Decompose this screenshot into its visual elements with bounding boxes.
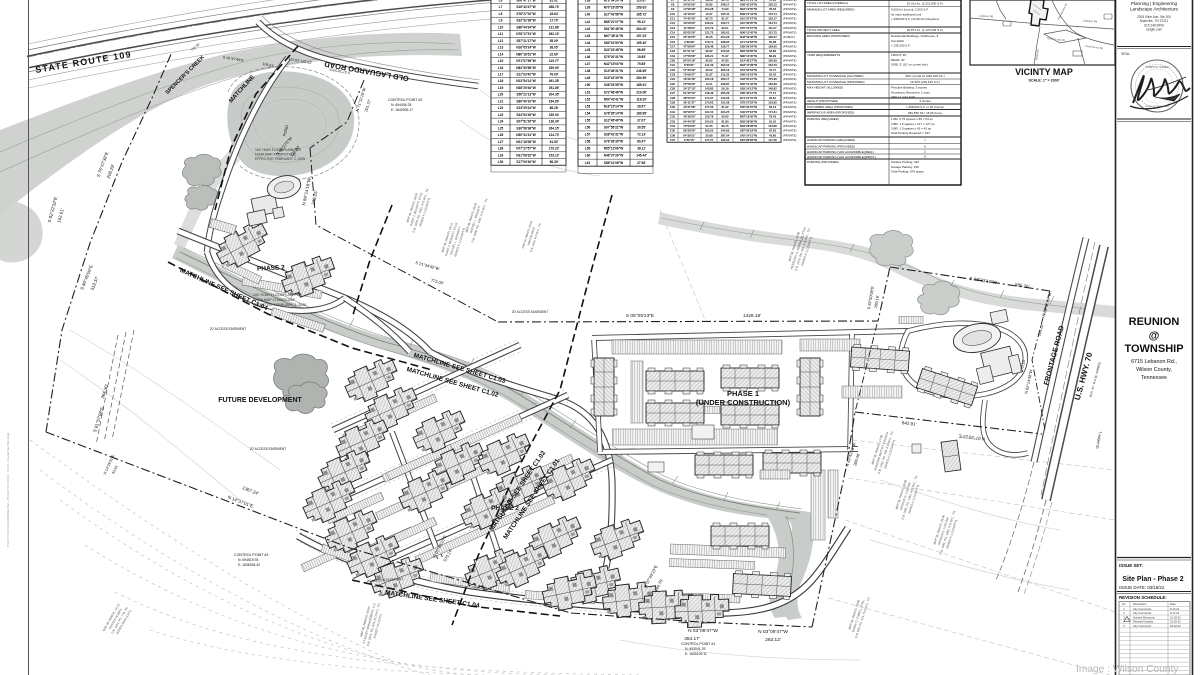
svg-text:28.57': 28.57' <box>637 104 646 108</box>
svg-text:L56: L56 <box>585 126 591 130</box>
svg-text:(PRIVATE): (PRIVATE) <box>783 54 796 58</box>
svg-text:79.43: 79.43 <box>769 115 776 119</box>
svg-text:129.60: 129.60 <box>768 45 777 49</box>
svg-text:3 BR: 1.0 spaces x 42 = 42 sp: 3 BR: 1.0 spaces x 42 = 42 sp <box>891 126 931 130</box>
svg-text:TOWNSHIP: TOWNSHIP <box>1124 343 1183 355</box>
svg-text:81.80: 81.80 <box>722 119 729 123</box>
svg-text:N38°29'40″W: N38°29'40″W <box>516 86 536 90</box>
svg-text:L17: L17 <box>498 72 504 76</box>
svg-text:210.06': 210.06' <box>636 90 647 94</box>
svg-text:REAR: 20': REAR: 20' <box>891 58 905 62</box>
svg-text:47°56'04″: 47°56'04″ <box>683 45 696 49</box>
svg-text:111.07: 111.07 <box>768 26 777 30</box>
svg-text:(PRIVATE): (PRIVATE) <box>783 87 796 91</box>
svg-text:Surface Parking: 340: Surface Parking: 340 <box>891 160 919 164</box>
svg-text:36°11'37″: 36°11'37″ <box>683 101 696 105</box>
svg-text:C15: C15 <box>670 35 676 39</box>
svg-text:S06°47'17″W: S06°47'17″W <box>516 0 535 2</box>
svg-text:L59: L59 <box>585 147 591 151</box>
svg-text:MAX HEIGHT (ALLOWED): MAX HEIGHT (ALLOWED) <box>807 86 843 90</box>
svg-text:20' ACCESS EASEMENT: 20' ACCESS EASEMENT <box>210 327 246 331</box>
svg-text:S36°33'55″W: S36°33'55″W <box>604 83 623 87</box>
svg-text:S76°36'30″W: S76°36'30″W <box>604 140 623 144</box>
svg-text:csdgtn.com: csdgtn.com <box>1146 28 1163 32</box>
svg-text:174.37: 174.37 <box>705 96 714 100</box>
svg-text:264.15': 264.15' <box>549 126 560 130</box>
svg-text:CONTROL POINT #2: CONTROL POINT #2 <box>388 98 422 102</box>
svg-text:N16°05'24″W: N16°05'24″W <box>516 46 536 50</box>
svg-text:C34: C34 <box>670 124 676 128</box>
svg-text:32.25: 32.25 <box>706 35 713 39</box>
svg-text:68°30'50″: 68°30'50″ <box>683 129 696 133</box>
svg-text:163.20: 163.20 <box>705 129 714 133</box>
svg-text:N87°06'56″W: N87°06'56″W <box>740 49 757 53</box>
svg-text:43.85: 43.85 <box>769 133 776 137</box>
svg-text:N48°27'26″W: N48°27'26″W <box>604 154 624 158</box>
svg-text:(PRIVATE): (PRIVATE) <box>783 17 796 21</box>
svg-text:S32°32'38″W: S32°32'38″W <box>516 19 535 23</box>
svg-text:180.65': 180.65' <box>636 111 647 115</box>
svg-text:(PRIVATE): (PRIVATE) <box>783 138 796 142</box>
svg-text:L53: L53 <box>585 104 591 108</box>
svg-text:102.17: 102.17 <box>768 17 777 21</box>
svg-text:BUILDING AREA (PROPOSED): BUILDING AREA (PROPOSED) <box>807 34 850 38</box>
svg-text:76.09': 76.09' <box>550 72 559 76</box>
svg-text:56.85': 56.85' <box>637 48 646 52</box>
svg-text:N64°13'55″W: N64°13'55″W <box>740 7 757 11</box>
svg-text:N54°42'41″W: N54°42'41″W <box>604 97 624 101</box>
svg-text:N: 694519.93: N: 694519.93 <box>238 558 258 562</box>
svg-text:Date: Date <box>1170 602 1176 606</box>
svg-text:N85°21'07″W: N85°21'07″W <box>604 20 624 24</box>
svg-text:154.73: 154.73 <box>768 21 777 25</box>
svg-text:119.77': 119.77' <box>549 59 560 63</box>
svg-text:(PRIVATE): (PRIVATE) <box>783 91 796 95</box>
svg-text:235.04': 235.04' <box>549 113 560 117</box>
svg-text:N23°47'28″W: N23°47'28″W <box>740 63 757 67</box>
svg-text:L7: L7 <box>499 5 503 9</box>
svg-text:S44°53'49″W: S44°53'49″W <box>516 113 535 117</box>
svg-text:11°38'04″: 11°38'04″ <box>683 26 696 30</box>
svg-text:175.96: 175.96 <box>768 77 777 81</box>
svg-text:228.87: 228.87 <box>721 82 730 86</box>
svg-text:Landscape Architecture: Landscape Architecture <box>1130 7 1178 12</box>
svg-text:L47: L47 <box>585 62 591 66</box>
svg-text:C13: C13 <box>670 26 676 30</box>
svg-text:113.23: 113.23 <box>721 73 730 77</box>
svg-text:(PRIVATE): (PRIVATE) <box>783 101 796 105</box>
svg-text:City Comments: City Comments <box>1133 607 1152 611</box>
svg-text:C30: C30 <box>670 105 676 109</box>
svg-text:S86°44'34″W: S86°44'34″W <box>516 25 535 29</box>
svg-text:43°27'38″: 43°27'38″ <box>683 105 696 109</box>
svg-text:54°44'18″: 54°44'18″ <box>683 119 696 123</box>
svg-text:L23: L23 <box>498 113 504 117</box>
svg-text:148.82: 148.82 <box>768 87 777 91</box>
svg-text:S09°41'34″W: S09°41'34″W <box>740 3 757 7</box>
svg-text:S 05°05'23″E: S 05°05'23″E <box>626 313 654 319</box>
svg-text:1,308,800 S.F. or 30.0 Acres: 1,308,800 S.F. or 30.0 Acres <box>906 105 944 109</box>
svg-text:L48: L48 <box>585 69 591 73</box>
svg-text:(PRIVATE): (PRIVATE) <box>783 59 796 63</box>
svg-text:259.63': 259.63' <box>636 6 647 10</box>
svg-text:(PRIVATE): (PRIVATE) <box>783 63 796 67</box>
svg-text:C17: C17 <box>670 45 676 49</box>
svg-text:C23: C23 <box>670 73 676 77</box>
svg-text:JOSEPH M. HADDEN: JOSEPH M. HADDEN <box>1145 66 1169 69</box>
svg-text:S30°58'36″W: S30°58'36″W <box>516 126 535 130</box>
svg-text:17.70': 17.70' <box>550 19 559 23</box>
svg-text:C20: C20 <box>670 59 676 63</box>
svg-text:Wilson County,: Wilson County, <box>1136 367 1172 373</box>
svg-text:22.60': 22.60' <box>550 52 559 56</box>
svg-text:265.26: 265.26 <box>721 91 730 95</box>
svg-text:71.97: 71.97 <box>722 54 729 58</box>
svg-text:40% of total lot (469,238 S.F.: 40% of total lot (469,238 S.F.) <box>905 74 945 78</box>
svg-text:C12: C12 <box>670 21 676 25</box>
svg-text:61.22: 61.22 <box>722 105 729 109</box>
svg-text:N67°19'42″W: N67°19'42″W <box>740 115 757 119</box>
svg-text:CONTROL POINT #3: CONTROL POINT #3 <box>234 553 268 557</box>
svg-text:DISTURBED AREA (PROPOSED): DISTURBED AREA (PROPOSED) <box>807 105 853 109</box>
svg-text:N70°16'35″W: N70°16'35″W <box>604 6 624 10</box>
svg-text:120.67': 120.67' <box>636 0 647 3</box>
svg-text:131.66': 131.66' <box>549 25 560 29</box>
svg-text:S14°40'27″W: S14°40'27″W <box>740 59 757 63</box>
svg-text:(PRIVATE): (PRIVATE) <box>783 82 796 86</box>
svg-text:38°55'04″: 38°55'04″ <box>683 96 696 100</box>
svg-text:177.32: 177.32 <box>705 105 714 109</box>
svg-text:4°29'39″: 4°29'39″ <box>684 40 696 44</box>
svg-text:45°39'20″: 45°39'20″ <box>683 115 696 119</box>
svg-text:C25: C25 <box>670 82 676 86</box>
svg-text:S49°27'04″W: S49°27'04″W <box>740 110 757 114</box>
svg-text:93.51: 93.51 <box>722 26 729 30</box>
svg-text:38.11': 38.11' <box>637 147 646 151</box>
svg-text:264.00': 264.00' <box>636 27 647 31</box>
svg-text:C11: C11 <box>670 17 675 21</box>
svg-text:L60: L60 <box>585 154 591 158</box>
svg-text:E: 1839109.11: E: 1839109.11 <box>685 652 707 656</box>
svg-text:Owners Revisions: Owners Revisions <box>1133 615 1155 619</box>
svg-text:15.65': 15.65' <box>637 55 646 59</box>
svg-text:177.27: 177.27 <box>705 138 714 142</box>
svg-text:YARD REQUIREMENTS: YARD REQUIREMENTS <box>807 53 840 57</box>
svg-text:74°42'45″: 74°42'45″ <box>683 17 696 21</box>
svg-text:S16°43'47″W: S16°43'47″W <box>516 5 535 9</box>
svg-text:S06°42'12″W: S06°42'12″W <box>740 91 757 95</box>
svg-text:N 03°09'47″W: N 03°09'47″W <box>688 628 718 634</box>
svg-text:C29: C29 <box>670 101 676 105</box>
svg-text:81.27: 81.27 <box>722 17 729 21</box>
svg-text:C31: C31 <box>670 110 676 114</box>
svg-text:N79°04'24″W: N79°04'24″W <box>604 0 624 3</box>
svg-text:(PRIVATE): (PRIVATE) <box>783 119 796 123</box>
svg-text:109.31: 109.31 <box>705 21 714 25</box>
svg-text:S23°29'24″W: S23°29'24″W <box>516 106 535 110</box>
svg-text:S42°14'51″W: S42°14'51″W <box>740 133 757 137</box>
svg-text:(PRIVATE): (PRIVATE) <box>783 129 796 133</box>
svg-text:129.77: 129.77 <box>721 45 730 49</box>
svg-text:S71°13'32″W: S71°13'32″W <box>740 40 757 44</box>
svg-text:131.75: 131.75 <box>768 31 777 35</box>
svg-text:L41: L41 <box>585 20 591 24</box>
svg-text:287.04: 287.04 <box>721 133 730 137</box>
svg-text:(PRIVATE): (PRIVATE) <box>783 7 796 11</box>
svg-text:S22°23'48″W: S22°23'48″W <box>604 48 623 52</box>
svg-text:C16: C16 <box>670 40 676 44</box>
svg-text:164.90': 164.90' <box>549 99 560 103</box>
svg-text:34°17'10″: 34°17'10″ <box>683 87 696 91</box>
svg-text:HANDICAP PARKING (VAN ACCESSIB: HANDICAP PARKING (VAN ACCESSIBLE)(REQ.) <box>807 150 874 154</box>
svg-text:165.72': 165.72' <box>636 13 647 17</box>
svg-text:103.79: 103.79 <box>768 63 777 67</box>
svg-text:S61°26'56″W: S61°26'56″W <box>740 138 757 142</box>
svg-text:22.82: 22.82 <box>706 3 713 7</box>
svg-text:S72°02'53″W: S72°02'53″W <box>740 68 757 72</box>
svg-text:(PRIVATE): (PRIVATE) <box>783 73 796 77</box>
svg-text:+ 638,500 S.F. (14.66 AC) Requ: + 638,500 S.F. (14.66 AC) Required <box>891 17 939 21</box>
svg-text:E: 1840905.17: E: 1840905.17 <box>391 108 413 112</box>
svg-text:30.55': 30.55' <box>637 126 646 130</box>
svg-text:L24: L24 <box>498 120 504 124</box>
svg-text:18.64': 18.64' <box>550 12 559 16</box>
svg-text:S17°09'40″W: S17°09'40″W <box>516 160 535 164</box>
svg-text:S11°02'42″W: S11°02'42″W <box>516 72 535 76</box>
svg-text:(UNDER CONSTRUCTION): (UNDER CONSTRUCTION) <box>696 398 791 407</box>
svg-text:29.02: 29.02 <box>706 68 713 72</box>
svg-text:141.09: 141.09 <box>705 63 714 67</box>
svg-text:135.41: 135.41 <box>721 12 730 16</box>
svg-text:L28: L28 <box>498 147 504 151</box>
svg-text:77.74: 77.74 <box>769 91 776 95</box>
svg-text:Garage Parking: 336: Garage Parking: 336 <box>891 165 919 169</box>
svg-text:L61: L61 <box>585 161 591 165</box>
svg-text:285.16: 285.16 <box>721 68 730 72</box>
svg-text:S38°42'31″W: S38°42'31″W <box>604 133 623 137</box>
svg-text:99.92: 99.92 <box>706 49 713 53</box>
svg-text:N42°15'03″W: N42°15'03″W <box>604 62 624 66</box>
svg-text:32.83: 32.83 <box>769 49 776 53</box>
svg-text:63.65: 63.65 <box>722 115 729 119</box>
svg-text:SEAL: SEAL <box>1121 52 1130 56</box>
svg-text:81.52': 81.52' <box>550 140 559 144</box>
svg-text:69°59'51″: 69°59'51″ <box>683 110 696 114</box>
svg-text:TOTAL PROJECT AREA: TOTAL PROJECT AREA <box>807 28 840 32</box>
svg-text:19.32% (226,615 S.F.): 19.32% (226,615 S.F.) <box>910 80 940 84</box>
svg-text:92.73: 92.73 <box>706 17 713 21</box>
svg-text:38.05': 38.05' <box>550 46 559 50</box>
svg-text:L40: L40 <box>585 13 591 17</box>
svg-text:143.85: 143.85 <box>705 87 714 91</box>
svg-text:S79°20'31″W: S79°20'31″W <box>604 55 623 59</box>
svg-text:195.30': 195.30' <box>636 41 647 45</box>
svg-text:01-25-22: 01-25-22 <box>1170 620 1181 624</box>
svg-text:Principle Building: 3 stories: Principle Building: 3 stories <box>891 86 928 90</box>
svg-text:N: 693041.29: N: 693041.29 <box>685 647 705 651</box>
svg-text:68.29: 68.29 <box>769 54 776 58</box>
svg-text:C19: C19 <box>670 54 676 58</box>
svg-text:88.28': 88.28' <box>550 106 559 110</box>
svg-text:14.21: 14.21 <box>706 82 713 86</box>
svg-text:(PRIVATE): (PRIVATE) <box>783 77 796 81</box>
svg-text:172.74: 172.74 <box>768 12 777 16</box>
svg-text:(PRIVATE): (PRIVATE) <box>783 21 796 25</box>
svg-text:97.63: 97.63 <box>769 129 776 133</box>
svg-text:25.88: 25.88 <box>706 133 713 137</box>
svg-text:100 YEAR FLOODPLAIN PER: 100 YEAR FLOODPLAIN PER <box>253 293 302 297</box>
svg-text:(PRIVATE): (PRIVATE) <box>783 133 796 137</box>
svg-text:L54: L54 <box>585 111 591 115</box>
svg-text:L25: L25 <box>498 126 504 130</box>
svg-text:150.99: 150.99 <box>768 59 777 63</box>
svg-text:165.77: 165.77 <box>721 21 730 25</box>
svg-text:L9: L9 <box>499 19 503 23</box>
svg-text:105.36: 105.36 <box>721 96 730 100</box>
svg-text:182.61: 182.61 <box>721 31 730 35</box>
svg-text:S86°41'06″W: S86°41'06″W <box>604 161 623 165</box>
svg-text:259.90': 259.90' <box>549 66 560 70</box>
svg-text:N55°51'42″W: N55°51'42″W <box>740 82 757 86</box>
svg-text:N18°15'14″W: N18°15'14″W <box>604 104 624 108</box>
svg-text:224.25: 224.25 <box>721 110 730 114</box>
svg-text:153.12': 153.12' <box>549 153 560 157</box>
svg-text:52.42: 52.42 <box>769 73 776 77</box>
svg-text:124.79: 124.79 <box>705 26 714 30</box>
svg-text:82°05'26″: 82°05'26″ <box>683 31 696 35</box>
svg-text:HANDICAP PARKING (PROVIDED): HANDICAP PARKING (PROVIDED) <box>807 145 855 149</box>
svg-text:Lebanon Rd: Lebanon Rd <box>979 14 994 19</box>
svg-text:136.21: 136.21 <box>705 54 714 58</box>
svg-text:S19°42'30″W: S19°42'30″W <box>604 76 623 80</box>
svg-text:97.80: 97.80 <box>722 59 729 63</box>
svg-text:Site Plan - Phase 2: Site Plan - Phase 2 <box>1122 576 1183 583</box>
svg-text:L51: L51 <box>585 90 591 94</box>
svg-text:(PRIVATE): (PRIVATE) <box>783 12 796 16</box>
svg-text:L18: L18 <box>498 79 504 83</box>
svg-text:8°00'21″: 8°00'21″ <box>684 63 696 67</box>
svg-text:C36: C36 <box>670 133 676 137</box>
svg-text:72.13': 72.13' <box>637 133 646 137</box>
svg-text:IMPERVIOUS AREA (PROPOSED): IMPERVIOUS AREA (PROPOSED) <box>807 111 854 115</box>
svg-text:@: @ <box>1149 330 1160 342</box>
svg-text:N62°28'28″W: N62°28'28″W <box>740 124 757 128</box>
svg-text:L16: L16 <box>498 66 504 70</box>
svg-text:124.73': 124.73' <box>549 133 560 137</box>
svg-text:171.31: 171.31 <box>768 110 777 114</box>
svg-text:157.23': 157.23' <box>636 34 647 38</box>
svg-text:Car Wash: Car Wash <box>891 39 905 43</box>
svg-text:N: 694406.28: N: 694406.28 <box>391 103 411 107</box>
svg-text:N55°12'06″W: N55°12'06″W <box>604 147 624 151</box>
svg-text:1 BR: 0.75 spaces x 85 = 64 sp: 1 BR: 0.75 spaces x 85 = 64 sp <box>891 117 933 121</box>
svg-text:L8: L8 <box>499 12 503 16</box>
svg-text:N30°41'31″W: N30°41'31″W <box>516 133 536 137</box>
svg-text:L10: L10 <box>498 25 504 29</box>
svg-text:210.32: 210.32 <box>721 49 730 53</box>
svg-text:262.10': 262.10' <box>549 32 560 36</box>
svg-text:C10: C10 <box>670 12 676 16</box>
svg-text:L12: L12 <box>498 39 504 43</box>
svg-text:N39°27'44″W: N39°27'44″W <box>740 12 757 16</box>
svg-text:03-18-22: 03-18-22 <box>1170 624 1181 628</box>
svg-text:FRONT: 30': FRONT: 30' <box>891 53 907 57</box>
svg-text:MAXIMUM LOT COVERAGE (ALLOWED): MAXIMUM LOT COVERAGE (ALLOWED) <box>807 74 863 78</box>
svg-text:C28: C28 <box>670 96 676 100</box>
svg-text:PHASE 2: PHASE 2 <box>257 264 286 272</box>
svg-text:16°22'49″: 16°22'49″ <box>683 77 696 81</box>
svg-text:No.: No. <box>1122 602 1126 606</box>
svg-text:REUNION: REUNION <box>1129 316 1180 328</box>
svg-text:(PRIVATE): (PRIVATE) <box>783 26 796 30</box>
svg-text:L55: L55 <box>585 118 591 122</box>
svg-text:C8: C8 <box>671 3 675 7</box>
svg-text:204.29: 204.29 <box>721 35 730 39</box>
svg-text:Residential Buildings, Clubhou: Residential Buildings, Clubhouse, & <box>891 34 939 38</box>
svg-text:L49: L49 <box>585 76 591 80</box>
svg-text:152.12: 152.12 <box>768 3 777 7</box>
svg-text:81°51'41″: 81°51'41″ <box>683 49 696 53</box>
svg-text:CONTROL POINT #1: CONTROL POINT #1 <box>681 642 715 646</box>
svg-text:61.16: 61.16 <box>769 119 776 123</box>
svg-text:REVISION SCHEDULE:: REVISION SCHEDULE: <box>1119 595 1167 600</box>
svg-text:N71°21'01″W: N71°21'01″W <box>740 96 757 100</box>
svg-text:L19: L19 <box>498 86 504 90</box>
svg-text:8-10-21: 8-10-21 <box>1170 607 1180 611</box>
svg-text:266.17: 266.17 <box>721 77 730 81</box>
svg-text:Revised Grading: Revised Grading <box>1133 620 1154 624</box>
svg-text:L29: L29 <box>498 153 504 157</box>
svg-text:N78°17'51″W: N78°17'51″W <box>516 32 536 36</box>
svg-text:S80°40'10″W: S80°40'10″W <box>516 99 535 103</box>
svg-text:L13: L13 <box>498 46 504 50</box>
svg-text:S10°37'47″W: S10°37'47″W <box>740 17 757 21</box>
svg-text:S10°32'05″W: S10°32'05″W <box>740 21 757 25</box>
svg-text:L43: L43 <box>585 34 591 38</box>
svg-text:N36°13'42″W: N36°13'42″W <box>740 31 757 35</box>
svg-text:S78°35'14″W: S78°35'14″W <box>604 111 623 115</box>
svg-text:VICINTY MAP: VICINTY MAP <box>1015 67 1073 77</box>
svg-text:City Comments: City Comments <box>1133 624 1152 628</box>
svg-text:881,559 SF / 15.65 Acres: 881,559 SF / 15.65 Acres <box>908 111 942 115</box>
svg-text:(PRIVATE): (PRIVATE) <box>783 124 796 128</box>
svg-text:145.44': 145.44' <box>636 154 647 158</box>
svg-text:(PRIVATE): (PRIVATE) <box>783 110 796 114</box>
svg-text:73°53'00″: 73°53'00″ <box>683 124 696 128</box>
svg-text:L58: L58 <box>585 140 591 144</box>
svg-text:L6: L6 <box>499 0 503 2</box>
svg-text:27.58': 27.58' <box>637 161 646 165</box>
svg-text:ISSUE DATE: 03/18/22: ISSUE DATE: 03/18/22 <box>1119 585 1165 590</box>
svg-text:3 stories: 3 stories <box>919 99 931 103</box>
svg-text:195.04: 195.04 <box>721 138 730 142</box>
svg-text:N80°13'45″W: N80°13'45″W <box>740 54 757 58</box>
svg-text:City Comments: City Comments <box>1133 611 1152 615</box>
svg-text:N80°16'51″W: N80°16'51″W <box>516 52 536 56</box>
svg-text:10°10'24″: 10°10'24″ <box>683 12 696 16</box>
svg-text:26.87± Ac. (1,170,645 S.F.): 26.87± Ac. (1,170,645 S.F.) <box>907 28 943 32</box>
svg-text:27.07': 27.07' <box>637 118 646 122</box>
svg-text:126.34': 126.34' <box>549 120 560 124</box>
svg-text:PARKING (PROVIDED): PARKING (PROVIDED) <box>807 160 839 164</box>
svg-text:C27: C27 <box>670 91 676 95</box>
svg-text:S79°27'22″W: S79°27'22″W <box>740 101 757 105</box>
svg-text:L20: L20 <box>498 93 504 97</box>
svg-text:TOTAL LOT AREA (OVERALL): TOTAL LOT AREA (OVERALL) <box>807 1 848 5</box>
svg-text:20' ACCESS EASEMENT: 20' ACCESS EASEMENT <box>512 310 548 314</box>
svg-text:55.09': 55.09' <box>550 39 559 43</box>
svg-text:L45: L45 <box>585 48 591 52</box>
